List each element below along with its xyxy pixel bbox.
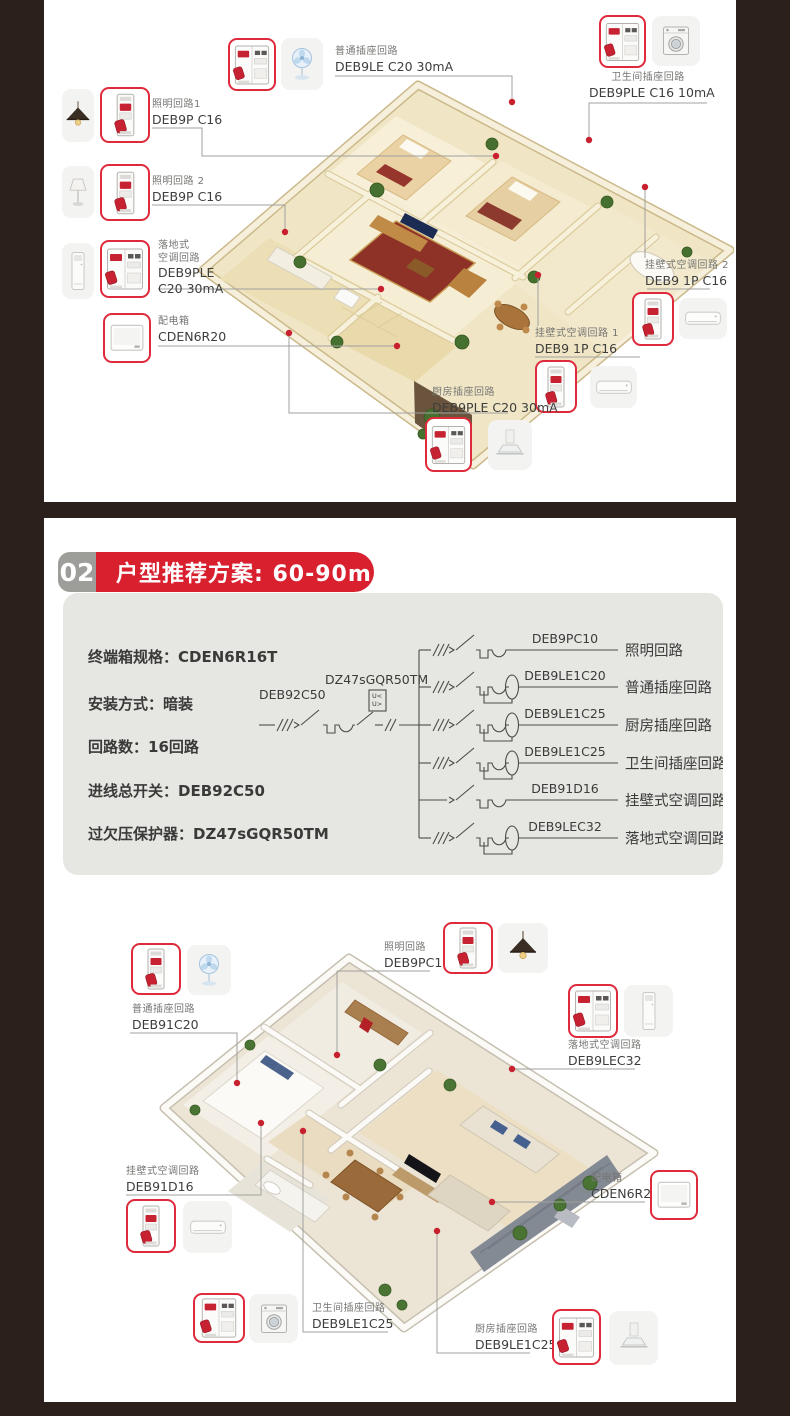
range-hood-icon <box>609 1311 658 1365</box>
callout-normal-socket-label: 普通插座回路 DEB91C20 <box>132 1004 199 1032</box>
callout-lighting-2-label: 照明回路 2 DEB9P C16 <box>152 176 222 204</box>
breaker-2p-icon <box>105 246 145 292</box>
breaker-1p-icon <box>112 170 139 216</box>
pendant-lamp-icon <box>62 89 94 142</box>
callout-bathroom-socket-label: 卫生间插座回路 DEB9LE1C25 <box>312 1303 394 1331</box>
section-large-apartment: 普通插座回路 DEB9LE C20 30mA 照明回路1 DEB9P C16 照… <box>44 0 736 502</box>
callout-bathroom-socket-label: 卫生间插座回路 DEB9PLE C16 10mA <box>589 72 707 100</box>
callout-floor-ac-label: 落地式空调回路 DEB9LEC32 <box>568 1040 642 1068</box>
main-breaker-model: DEB92C50 <box>259 687 326 702</box>
breaker-2p-icon <box>604 21 641 63</box>
branch-circuit-4: 挂壁式空调回路 <box>625 793 723 810</box>
breaker-1p-product <box>100 164 150 221</box>
callout-kitchen-socket-label: 厨房插座回路 DEB9LE1C25 <box>475 1324 557 1352</box>
spec-and-diagram-panel: 终端箱规格：CDEN6R16T 安装方式：暗装 回路数：16回路 进线总开关：D… <box>63 593 723 875</box>
circuit-branch-0: DEB9PC10 照明回路 <box>419 631 683 660</box>
branch-model-3: DEB9LE1C25 <box>524 744 606 759</box>
section-title: 户型推荐方案: 60-90m2 <box>96 552 374 592</box>
branch-model-2: DEB9LE1C25 <box>524 706 606 721</box>
fan-icon <box>281 38 323 90</box>
circuit-branch-1: DEB9LE1C20 普通插座回路 <box>419 668 712 703</box>
branch-model-5: DEB9LEC32 <box>528 819 602 834</box>
wall-ac-icon <box>679 298 727 339</box>
wall-ac-icon <box>183 1201 232 1253</box>
callout-distribution-box-label: 配电箱 CDEN6R20 <box>591 1173 659 1201</box>
callout-wall-ac-2-label: 挂壁式空调回路 2 DEB9 1P C16 <box>645 260 729 288</box>
branch-circuit-1: 普通插座回路 <box>625 680 712 697</box>
callout-lighting-label: 照明回路 DEB9PC10 <box>384 942 450 970</box>
circuit-branch-3: DEB9LE1C25 卫生间插座回路 <box>419 744 723 779</box>
branch-circuit-5: 落地式空调回路 <box>625 831 723 848</box>
branch-model-0: DEB9PC10 <box>532 631 598 646</box>
branch-circuit-0: 照明回路 <box>625 643 683 660</box>
circuit-diagram: DEB92C50 DZ47sGQR50TM U< U> DEB9PC10 照明回… <box>63 593 723 875</box>
breaker-2p-icon <box>557 1315 596 1360</box>
washing-machine-icon <box>249 1294 298 1343</box>
branch-circuit-2: 厨房插座回路 <box>625 718 712 735</box>
callout-kitchen-socket-label: 厨房插座回路 DEB9PLE C20 30mA <box>432 387 558 415</box>
breaker-1p-product <box>131 943 181 995</box>
section-number-badge: 02 <box>58 552 96 592</box>
callout-distribution-box-label: 配电箱 CDEN6R20 <box>158 316 226 344</box>
floor-ac-icon <box>62 243 94 299</box>
breaker-2p-product <box>228 38 276 91</box>
protector-model: DZ47sGQR50TM <box>325 672 428 687</box>
protector-symbol-u-under: U< <box>372 692 382 700</box>
breaker-2p-icon <box>573 989 613 1033</box>
callout-lighting-1-label: 照明回路1 DEB9P C16 <box>152 99 222 127</box>
breaker-2p-icon <box>233 44 271 86</box>
breaker-1p-icon <box>143 947 169 991</box>
circuit-branch-2: DEB9LE1C25 厨房插座回路 <box>419 706 712 741</box>
distribution-box-icon <box>103 313 151 363</box>
fan-icon <box>187 945 231 995</box>
circuit-branch-4: DEB91D16 挂壁式空调回路 <box>419 781 723 810</box>
floor-ac-icon <box>624 985 673 1037</box>
breaker-1p-product <box>126 1199 176 1253</box>
page: 普通插座回路 DEB9LE C20 30mA 照明回路1 DEB9P C16 照… <box>0 0 790 1416</box>
range-hood-icon <box>488 420 532 470</box>
breaker-2p-product <box>568 984 618 1038</box>
breaker-1p-product <box>632 292 674 346</box>
breaker-1p-product <box>100 87 150 143</box>
callout-wall-ac-1-label: 挂壁式空调回路 1 DEB9 1P C16 <box>535 328 619 356</box>
breaker-2p-icon <box>199 1297 239 1339</box>
protector-symbol-u-over: U> <box>372 700 382 708</box>
breaker-1p-product <box>443 922 493 974</box>
breaker-2p-product <box>599 15 646 68</box>
distribution-box-icon <box>650 1170 698 1220</box>
branch-model-1: DEB9LE1C20 <box>524 668 606 683</box>
section-60-90sqm: 02 户型推荐方案: 60-90m2 终端箱规格：CDEN6R16T 安装方式：… <box>44 518 736 1402</box>
breaker-2p-product <box>193 1293 245 1343</box>
breaker-1p-icon <box>138 1204 164 1248</box>
table-lamp-icon <box>62 166 94 218</box>
branch-circuit-3: 卫生间插座回路 <box>625 756 723 773</box>
wall-ac-icon <box>590 366 637 408</box>
breaker-2p-product <box>100 240 150 298</box>
breaker-1p-icon <box>455 926 481 970</box>
breaker-1p-icon <box>112 92 139 138</box>
washing-machine-icon <box>652 16 700 66</box>
breaker-2p-product <box>552 1309 601 1365</box>
branch-model-4: DEB91D16 <box>531 781 599 796</box>
callout-floor-ac-label: 落地式 空调回路 DEB9PLE C20 30mA <box>158 240 223 296</box>
callout-normal-socket-label: 普通插座回路 DEB9LE C20 30mA <box>335 46 453 74</box>
breaker-1p-icon <box>640 297 666 341</box>
breaker-2p-icon <box>430 423 467 467</box>
circuit-branch-5: DEB9LEC32 落地式空调回路 <box>419 819 723 854</box>
pendant-lamp-icon <box>498 923 548 973</box>
callout-wall-ac-label: 挂壁式空调回路 DEB91D16 <box>126 1166 200 1194</box>
breaker-2p-product <box>425 417 472 472</box>
